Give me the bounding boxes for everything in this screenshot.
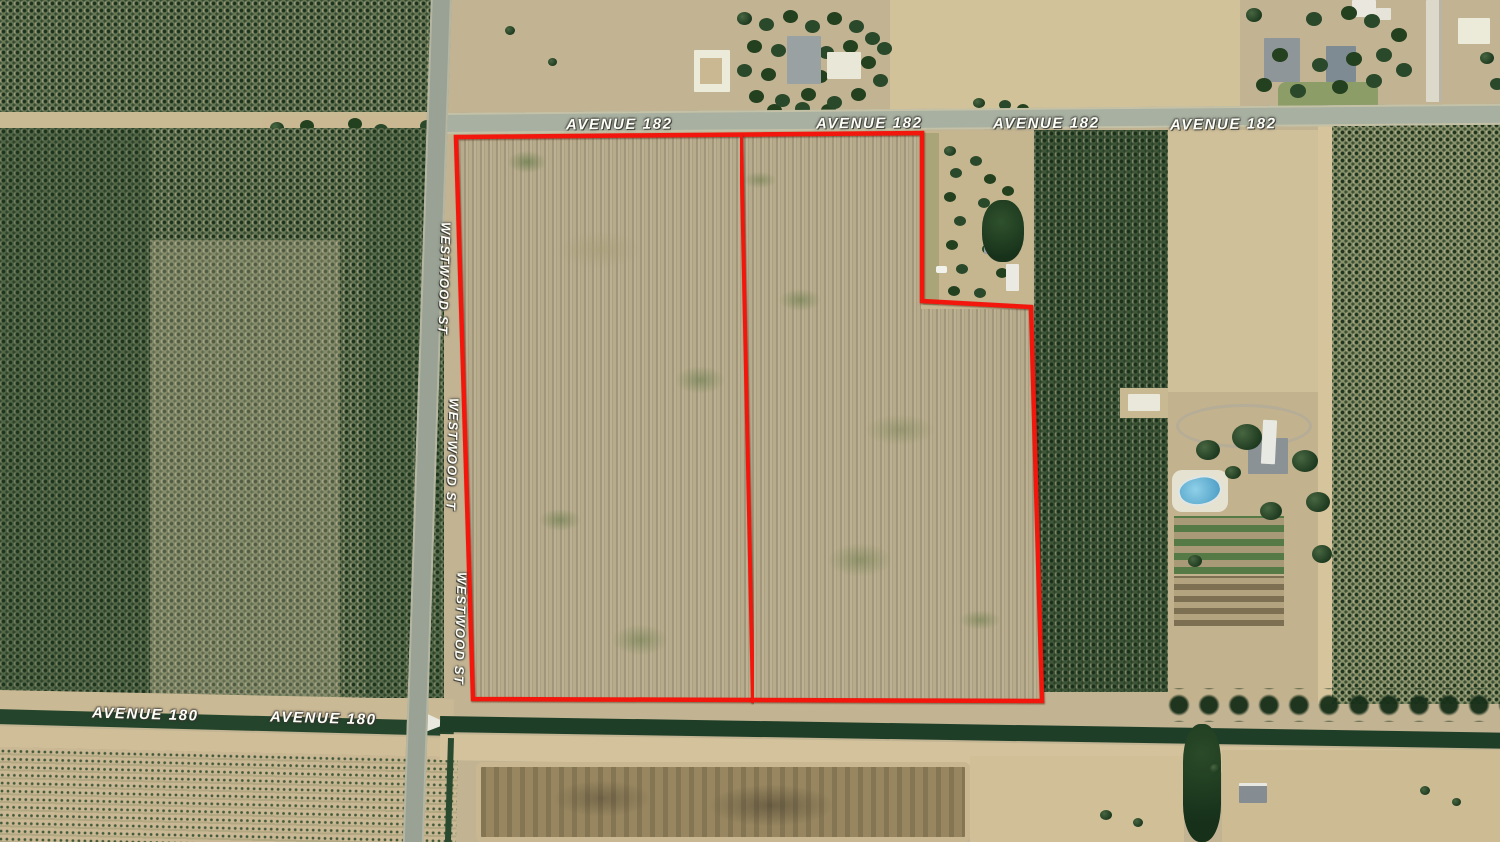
road-label-westwood-st-3: WESTWOOD ST <box>452 572 468 685</box>
road-label-avenue-180-2: AVENUE 180 <box>270 710 377 728</box>
road-label-avenue-180-1: AVENUE 180 <box>92 706 199 724</box>
road-label-avenue-182-4: AVENUE 182 <box>1170 116 1277 132</box>
road-label-avenue-182-3: AVENUE 182 <box>993 116 1100 132</box>
road-label-avenue-182-1: AVENUE 182 <box>566 117 673 133</box>
road-label-westwood-st-2: WESTWOOD ST <box>444 398 460 511</box>
road-label-westwood-st-1: WESTWOOD ST <box>436 222 452 335</box>
parcel-divider <box>741 135 753 703</box>
satellite-map: AVENUE 182 AVENUE 182 AVENUE 182 AVENUE … <box>0 0 1500 842</box>
road-label-avenue-182-2: AVENUE 182 <box>816 116 923 132</box>
parcel-outline <box>456 133 1042 701</box>
